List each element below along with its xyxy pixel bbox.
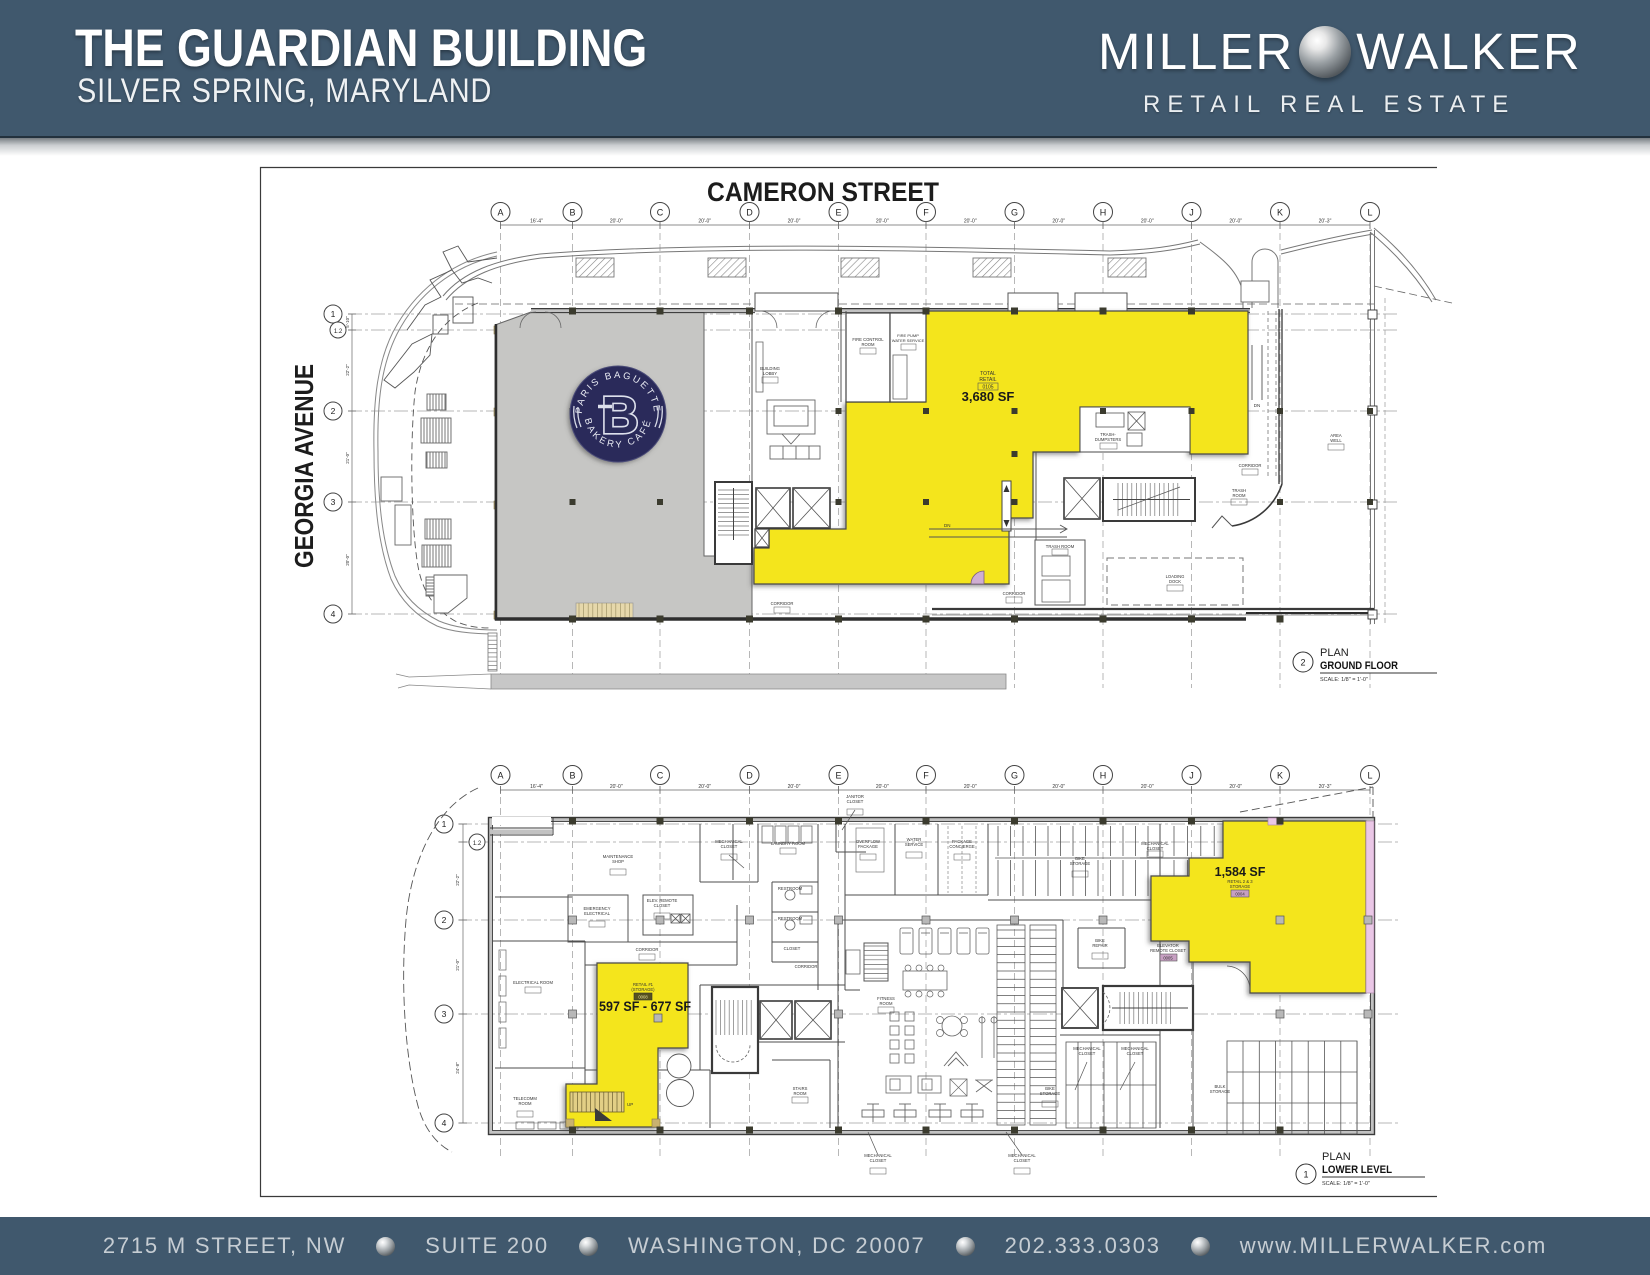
svg-text:CORRIDOR: CORRIDOR	[1003, 591, 1026, 596]
svg-text:20'-0": 20'-0"	[1052, 219, 1065, 225]
svg-text:24'-8": 24'-8"	[455, 1062, 460, 1074]
svg-text:1: 1	[1303, 1170, 1308, 1180]
svg-text:20'-0": 20'-0"	[1052, 784, 1065, 790]
svg-text:(STORAGE): (STORAGE)	[631, 987, 655, 992]
svg-text:B: B	[601, 387, 639, 445]
svg-text:ROOM: ROOM	[518, 1101, 532, 1106]
svg-text:B: B	[569, 208, 575, 218]
svg-text:22'-2": 22'-2"	[345, 364, 350, 376]
svg-text:LOBBY: LOBBY	[763, 371, 777, 376]
svg-text:20'-0": 20'-0"	[1229, 219, 1242, 225]
svg-text:D: D	[746, 208, 753, 218]
svg-text:A: A	[497, 208, 503, 218]
svg-text:2: 2	[331, 406, 336, 416]
svg-text:20'-0": 20'-0"	[876, 784, 889, 790]
svg-text:22'-2": 22'-2"	[455, 874, 460, 886]
svg-text:PACKAGE: PACKAGE	[858, 844, 878, 849]
svg-text:20'-0": 20'-0"	[610, 219, 623, 225]
svg-text:H: H	[1100, 771, 1107, 781]
svg-text:D: D	[746, 771, 753, 781]
svg-text:PLAN: PLAN	[1320, 647, 1349, 659]
svg-text:597 SF - 677 SF: 597 SF - 677 SF	[599, 999, 691, 1014]
svg-text:SCALE: 1/8" = 1'-0": SCALE: 1/8" = 1'-0"	[1320, 677, 1368, 683]
svg-text:SHOP: SHOP	[612, 859, 624, 864]
svg-text:CORRIDOR: CORRIDOR	[795, 964, 818, 969]
svg-text:16'-4": 16'-4"	[530, 219, 543, 225]
svg-text:GEORGIA AVENUE: GEORGIA AVENUE	[289, 364, 319, 568]
svg-text:ROOM: ROOM	[879, 1001, 893, 1006]
svg-text:C: C	[657, 208, 664, 218]
svg-text:TRASH ROOM: TRASH ROOM	[1046, 544, 1075, 549]
svg-text:G: G	[1011, 771, 1018, 781]
svg-text:1: 1	[442, 819, 447, 829]
svg-text:20'-0": 20'-0"	[788, 784, 801, 790]
svg-text:K: K	[1277, 208, 1283, 218]
svg-text:CONCIERGE: CONCIERGE	[949, 844, 975, 849]
svg-text:STORAGE: STORAGE	[1210, 1089, 1231, 1094]
svg-text:20'-0": 20'-0"	[964, 219, 977, 225]
svg-text:3,680 SF: 3,680 SF	[962, 389, 1015, 404]
svg-text:20'-0": 20'-0"	[1141, 784, 1154, 790]
svg-text:ROOM: ROOM	[861, 342, 875, 347]
svg-text:2: 2	[442, 915, 447, 925]
svg-text:L: L	[1367, 771, 1372, 781]
svg-text:STORAGE: STORAGE	[1070, 861, 1091, 866]
svg-text:CLOSET: CLOSET	[847, 799, 864, 804]
svg-text:L: L	[1367, 208, 1372, 218]
svg-text:REMOTE CLOSET: REMOTE CLOSET	[1150, 948, 1186, 953]
svg-text:DN: DN	[944, 523, 951, 528]
svg-text:CLOSET: CLOSET	[654, 903, 671, 908]
svg-text:CORRIDOR: CORRIDOR	[1239, 463, 1262, 468]
svg-text:CORRIDOR: CORRIDOR	[636, 947, 659, 952]
svg-text:3: 3	[442, 1009, 447, 1019]
svg-text:DN: DN	[1254, 403, 1261, 408]
svg-text:CLOSET: CLOSET	[1079, 1051, 1096, 1056]
svg-text:ROOM: ROOM	[1232, 493, 1246, 498]
svg-text:21'-0": 21'-0"	[455, 959, 460, 971]
svg-text:20'-0": 20'-0"	[345, 554, 350, 566]
svg-text:LAUNDRY ROOM: LAUNDRY ROOM	[771, 841, 806, 846]
svg-text:4: 4	[331, 609, 336, 619]
svg-text:20'-0": 20'-0"	[964, 784, 977, 790]
svg-text:K: K	[1277, 771, 1283, 781]
svg-text:ELECTRICAL: ELECTRICAL	[584, 911, 611, 916]
svg-text:1,584 SF: 1,584 SF	[1215, 865, 1266, 879]
svg-text:C: C	[657, 771, 664, 781]
svg-text:ROOM: ROOM	[793, 1091, 807, 1096]
svg-text:STORAGE: STORAGE	[1230, 884, 1251, 889]
svg-text:2: 2	[1300, 658, 1305, 668]
svg-text:20'-0": 20'-0"	[610, 784, 623, 790]
svg-text:RESTROOM: RESTROOM	[778, 916, 803, 921]
svg-text:STORAGE: STORAGE	[1040, 1091, 1061, 1096]
svg-text:20'-0": 20'-0"	[1229, 784, 1242, 790]
svg-text:CLOSET: CLOSET	[870, 1158, 887, 1163]
svg-text:DUMPSTERS: DUMPSTERS	[1095, 437, 1121, 442]
svg-text:SCALE: 1/8" = 1'-0": SCALE: 1/8" = 1'-0"	[1322, 1181, 1370, 1187]
svg-text:ELECTRICAL ROOM: ELECTRICAL ROOM	[513, 980, 553, 985]
svg-text:LOWER LEVEL: LOWER LEVEL	[1322, 1164, 1392, 1176]
svg-text:20'-0": 20'-0"	[876, 219, 889, 225]
svg-text:REPAIR: REPAIR	[1092, 943, 1107, 948]
svg-text:CORRIDOR: CORRIDOR	[771, 601, 794, 606]
svg-text:SERVICE: SERVICE	[905, 842, 924, 847]
svg-text:1: 1	[331, 309, 336, 319]
svg-text:16'-4": 16'-4"	[530, 784, 543, 790]
svg-text:E: E	[835, 771, 841, 781]
svg-text:CAMERON STREET: CAMERON STREET	[707, 177, 939, 207]
svg-text:20'-0": 20'-0"	[698, 219, 711, 225]
svg-text:20'-3": 20'-3"	[1319, 219, 1332, 225]
svg-text:GROUND FLOOR: GROUND FLOOR	[1320, 660, 1398, 672]
svg-text:21'-0": 21'-0"	[345, 452, 350, 464]
svg-text:RESTROOM: RESTROOM	[778, 886, 803, 891]
svg-text:20'-0": 20'-0"	[698, 784, 711, 790]
svg-text:20'-3": 20'-3"	[1319, 784, 1332, 790]
svg-text:J: J	[1189, 208, 1194, 218]
svg-text:0005: 0005	[1163, 956, 1173, 961]
svg-text:20'-0": 20'-0"	[788, 219, 801, 225]
svg-text:5'-10": 5'-10"	[345, 316, 350, 328]
svg-text:B: B	[569, 771, 575, 781]
svg-text:CLOSET: CLOSET	[1014, 1158, 1031, 1163]
svg-text:20'-0": 20'-0"	[1141, 219, 1154, 225]
svg-text:WELL: WELL	[1330, 438, 1342, 443]
svg-text:F: F	[923, 208, 929, 218]
svg-text:E: E	[835, 208, 841, 218]
svg-text:A: A	[497, 771, 503, 781]
svg-text:G: G	[1011, 208, 1018, 218]
svg-text:CLOSET: CLOSET	[1147, 846, 1164, 851]
svg-text:WATER SERVICE: WATER SERVICE	[892, 338, 925, 343]
svg-text:PLAN: PLAN	[1322, 1151, 1351, 1163]
svg-text:4: 4	[442, 1118, 447, 1128]
svg-text:CLOSET: CLOSET	[721, 844, 738, 849]
svg-text:1.2: 1.2	[334, 329, 343, 335]
svg-text:J: J	[1189, 771, 1194, 781]
svg-text:0004: 0004	[1235, 892, 1245, 897]
svg-text:CLOSET: CLOSET	[784, 946, 801, 951]
svg-text:DOCK: DOCK	[1169, 579, 1181, 584]
svg-text:CLOSET: CLOSET	[1127, 1051, 1144, 1056]
svg-text:H: H	[1100, 208, 1107, 218]
svg-text:1.2: 1.2	[473, 841, 482, 847]
svg-text:UP: UP	[627, 1102, 633, 1107]
svg-text:F: F	[923, 771, 929, 781]
svg-text:RETAIL: RETAIL	[979, 377, 996, 383]
svg-text:3: 3	[331, 497, 336, 507]
